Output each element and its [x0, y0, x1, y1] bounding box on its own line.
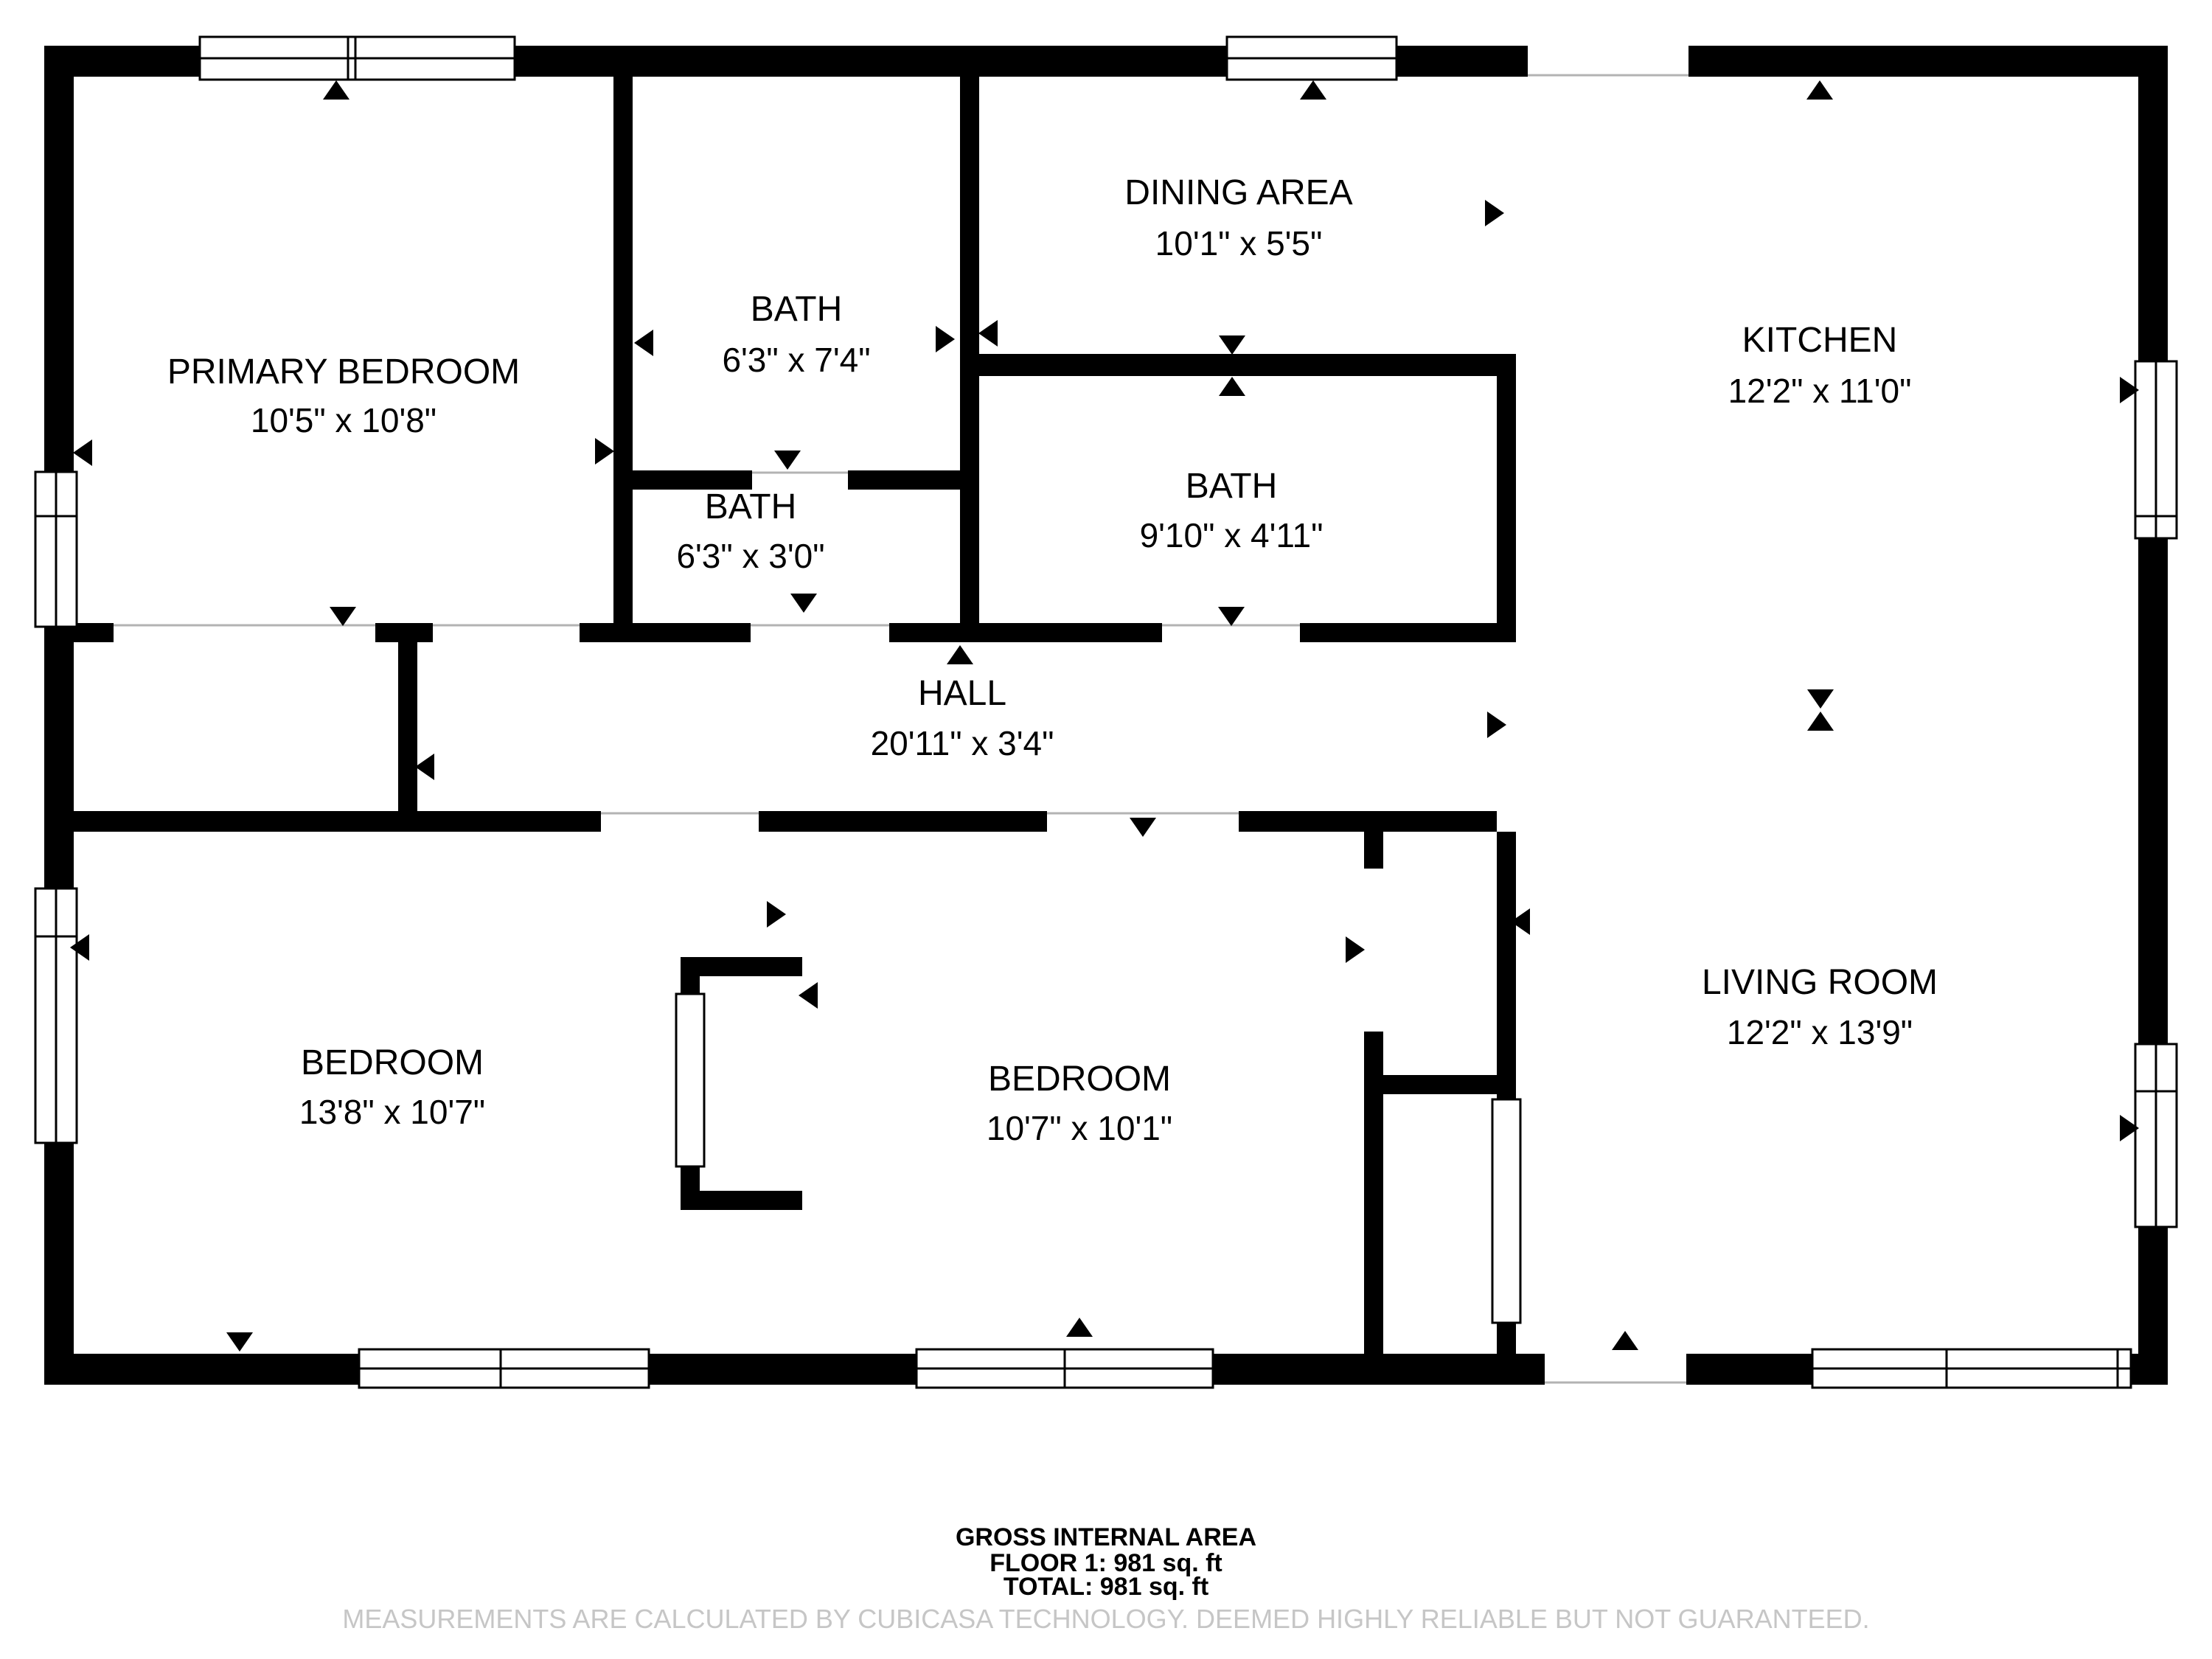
closet-slider-door-bedroom [676, 994, 704, 1166]
room-dims-bath-wide: 9'10" x 4'11" [1140, 518, 1324, 552]
room-dims-bedroom-left: 13'8" x 10'7" [299, 1095, 485, 1129]
footer-gross-internal-area: GROSS INTERNAL AREA [956, 1525, 1256, 1550]
interior-walls [74, 77, 1516, 1354]
room-dims-hall: 20'11" x 3'4" [871, 726, 1054, 760]
room-dims-primary-bedroom: 10'5" x 10'8" [251, 403, 437, 437]
footer-disclaimer: MEASUREMENTS ARE CALCULATED BY CUBICASA … [342, 1606, 1869, 1632]
footer-total-area: TOTAL: 981 sq. ft [1004, 1574, 1208, 1599]
room-label-hall: HALL [918, 676, 1006, 712]
door-direction-markers [70, 80, 2139, 1352]
room-label-bath-wide: BATH [1186, 469, 1277, 504]
room-label-bedroom-left: BEDROOM [301, 1046, 484, 1081]
room-dims-dining-area: 10'1" x 5'5" [1155, 226, 1323, 260]
room-label-dining-area: DINING AREA [1124, 175, 1352, 211]
room-dims-kitchen: 12'2" x 11'0" [1728, 374, 1912, 408]
closet-doors [676, 994, 1520, 1323]
windows [35, 37, 2177, 1388]
room-label-bath-upper: BATH [751, 292, 842, 327]
room-label-bedroom-middle: BEDROOM [988, 1062, 1171, 1097]
room-dims-bath-upper: 6'3" x 7'4" [722, 343, 870, 377]
closet-slider-door-living [1492, 1099, 1520, 1323]
room-label-kitchen: KITCHEN [1742, 323, 1898, 358]
room-dims-bedroom-middle: 10'7" x 10'1" [987, 1111, 1172, 1145]
window-mullions [35, 37, 2177, 1388]
footer-floor-area: FLOOR 1: 981 sq. ft [990, 1551, 1222, 1576]
room-label-living-room: LIVING ROOM [1702, 965, 1938, 1001]
room-dims-bath-small: 6'3" x 3'0" [676, 539, 824, 573]
room-label-primary-bedroom: PRIMARY BEDROOM [167, 355, 520, 390]
room-label-bath-small: BATH [705, 490, 796, 525]
exterior-walls [44, 46, 2168, 1385]
floorplan-drawing [0, 0, 2212, 1659]
floorplan-page: { "floorplan": { "rooms": [ {"name": "PR… [0, 0, 2212, 1659]
room-dims-living-room: 12'2" x 13'9" [1727, 1015, 1913, 1049]
